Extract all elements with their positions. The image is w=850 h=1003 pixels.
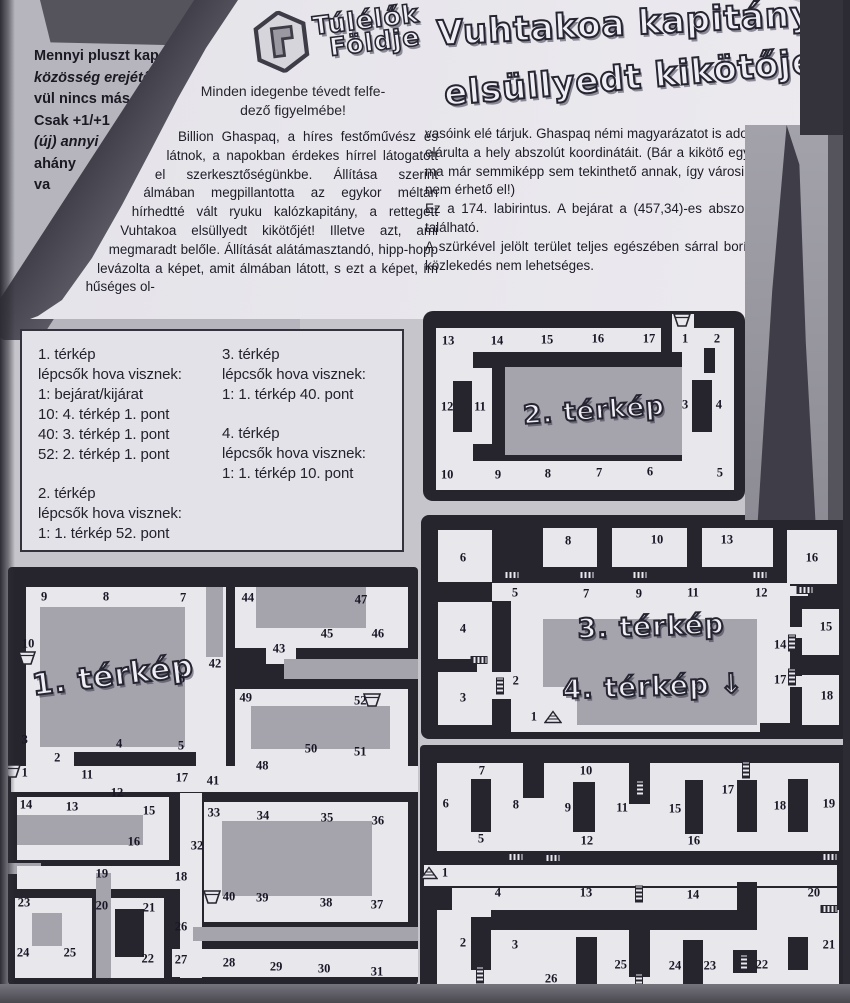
page-title-line2: elsüllyedt kikötője [429, 41, 831, 116]
background-photo [745, 125, 850, 520]
map-point-number: 2 [54, 750, 60, 765]
map-point-number: 3 [22, 733, 28, 748]
map-point-number: 8 [103, 590, 109, 605]
map-point-number: 12 [111, 786, 124, 801]
maze-wall [471, 779, 491, 832]
door-icon [740, 954, 748, 971]
stairs-legend-box: 1. térkép lépcsők hova visznek: 1: bejár… [20, 329, 404, 552]
map-point-number: 30 [318, 962, 331, 977]
legend-entry: 1: bejárat/kijárat [38, 385, 218, 405]
map-point-number: 6 [443, 797, 449, 812]
map-point-number: 33 [208, 806, 221, 821]
maze-wall [661, 328, 672, 353]
map-point-number: 11 [687, 585, 699, 600]
map-point-number: 9 [495, 467, 501, 482]
map-point-number: 4 [495, 886, 501, 901]
map-point-number: 25 [615, 958, 628, 973]
legend-title: 2. térkép [38, 484, 218, 504]
maze-mud-area [222, 821, 372, 896]
legend-subtitle: lépcsők hova visznek: [222, 444, 392, 464]
map-point-number: 5 [178, 738, 184, 753]
scan-edge-right [843, 0, 850, 1003]
map-point-number: 9 [41, 590, 47, 605]
map-point-number: 31 [371, 965, 384, 980]
map-point-number: 20 [808, 886, 821, 901]
map-point-number: 2 [460, 936, 466, 951]
map-point-number: 4 [716, 398, 722, 413]
door-icon [476, 967, 484, 984]
map-3-maze: 3. térkép4. térkép ↓12345678910111213141… [421, 515, 850, 739]
legend-entry: 52: 2. térkép 1. pont [38, 445, 218, 465]
maze-wall [683, 940, 703, 986]
map-point-number: 14 [20, 797, 33, 812]
map-point-number: 6 [647, 464, 653, 479]
legend-title: 4. térkép [222, 424, 392, 444]
maze-wall [692, 380, 712, 431]
intro-line1: Minden idegenbe tévedt felfe- [168, 82, 418, 101]
map-point-number: 17 [774, 673, 787, 688]
map-point-number: 12 [581, 834, 594, 849]
maze-mud-area [251, 706, 390, 749]
map-point-number: 7 [180, 590, 186, 605]
legend-entry: 1: 1. térkép 40. pont [222, 385, 392, 405]
map-point-number: 25 [64, 945, 77, 960]
door-icon [496, 678, 504, 695]
door-icon [788, 669, 796, 686]
stairs-icon [544, 710, 562, 723]
map-point-number: 18 [175, 870, 188, 885]
door-icon [578, 571, 595, 579]
map-point-number: 18 [821, 688, 834, 703]
door-icon [507, 853, 524, 861]
maze-wall [115, 909, 144, 957]
map-point-number: 47 [355, 593, 368, 608]
map-point-number: 15 [541, 333, 554, 348]
maze-wall [788, 779, 808, 832]
maze-mud-area [96, 873, 111, 978]
map-point-number: 38 [320, 896, 333, 911]
map-point-number: 24 [669, 959, 682, 974]
map-point-number: 13 [721, 533, 734, 548]
map-point-number: 10 [580, 764, 593, 779]
map-point-number: 14 [774, 637, 787, 652]
map-point-number: 50 [305, 741, 318, 756]
door-icon [820, 905, 837, 913]
map-point-number: 7 [479, 764, 485, 779]
maze-corridor [424, 865, 837, 886]
map-point-number: 11 [81, 768, 93, 783]
map-point-number: 12 [441, 399, 454, 414]
map-point-number: 35 [321, 810, 334, 825]
map-point-number: 36 [372, 814, 385, 829]
map-point-number: 2 [714, 331, 720, 346]
map-point-number: 15 [820, 620, 833, 635]
map-point-number: 48 [256, 758, 269, 773]
maze-wall [573, 782, 595, 832]
map-point-number: 7 [583, 587, 589, 602]
legend-title: 1. térkép [38, 345, 218, 365]
maze-wall [576, 937, 597, 986]
map-point-number: 4 [460, 622, 466, 637]
map-point-number: 10 [441, 467, 454, 482]
map-point-number: 12 [755, 585, 768, 600]
maze-wall [523, 745, 544, 798]
map-point-number: 5 [512, 585, 518, 600]
legend-section-map3: 3. térkép lépcsők hova visznek: 1: 1. té… [222, 345, 392, 405]
map-point-number: 17 [643, 331, 656, 346]
map-point-number: 22 [756, 958, 769, 973]
magazine-page: Mennyi pluszt kap Őr közösség erejétől v… [0, 0, 850, 1003]
maze-mud-area [32, 913, 62, 946]
maze-mud-area [193, 927, 418, 940]
map-point-number: 9 [565, 801, 571, 816]
door-icon [742, 762, 750, 779]
map-point-number: 3 [512, 938, 518, 953]
map-point-number: 7 [596, 466, 602, 481]
map-point-number: 41 [207, 774, 220, 789]
map-point-number: 24 [17, 945, 30, 960]
map-point-number: 15 [143, 804, 156, 819]
map-point-number: 23 [18, 896, 31, 911]
maze-corridor [702, 528, 773, 567]
map-point-number: 32 [191, 838, 204, 853]
legend-entry: 40: 3. térkép 1. pont [38, 425, 218, 445]
spire-silhouette [753, 125, 833, 520]
map-point-number: 10 [22, 636, 35, 651]
map-point-number: 13 [442, 334, 455, 349]
maze-corridor [452, 888, 837, 911]
door-icon [751, 571, 768, 579]
map-point-number: 19 [96, 866, 109, 881]
maze-mud-area [206, 587, 223, 657]
legend-subtitle: lépcsők hova visznek: [38, 365, 218, 385]
map-point-number: 16 [806, 551, 819, 566]
map-point-number: 46 [372, 626, 385, 641]
legend-entry: 10: 4. térkép 1. pont [38, 405, 218, 425]
door-icon [635, 885, 643, 902]
door-icon [470, 656, 487, 664]
intro-line2: dező figyelmébe! [168, 101, 418, 120]
map-point-number: 16 [128, 835, 141, 850]
map-point-number: 2 [513, 673, 519, 688]
legend-section-map4: 4. térkép lépcsők hova visznek: 1: 1. té… [222, 424, 392, 484]
door-icon [544, 854, 561, 862]
map-point-number: 13 [580, 886, 593, 901]
maze-wall [737, 780, 757, 832]
stairs-cup-icon [673, 313, 691, 327]
map-point-number: 21 [143, 901, 156, 916]
stairs-cup-icon [203, 890, 221, 904]
door-icon [796, 586, 813, 594]
maze-wall [471, 917, 491, 970]
tf-logo-icon [249, 7, 314, 76]
maze-mud-area [256, 587, 366, 628]
map-point-number: 16 [688, 834, 701, 849]
maze-wall [74, 752, 202, 766]
map-point-number: 45 [321, 626, 334, 641]
maze-corridor [612, 528, 687, 567]
stairs-icon [420, 866, 438, 879]
map-point-number: 10 [651, 533, 664, 548]
map-point-number: 27 [175, 952, 188, 967]
map-point-number: 14 [491, 334, 504, 349]
map-point-number: 44 [242, 590, 255, 605]
maze-corridor [760, 583, 790, 723]
map-label: 3. térkép [577, 609, 725, 645]
map-point-number: 1 [442, 866, 448, 881]
map-point-number: 5 [478, 832, 484, 847]
maze-mud-area [284, 659, 418, 679]
stairs-cup-icon [18, 651, 36, 665]
map-point-number: 28 [223, 955, 236, 970]
map-point-number: 26 [175, 919, 188, 934]
map-point-number: 51 [354, 745, 367, 760]
scan-edge-left [0, 0, 15, 990]
maze-mud-area [17, 815, 143, 845]
down-arrow-icon: ↓ [708, 669, 743, 701]
scan-edge-bottom [0, 984, 850, 1003]
map-point-number: 18 [774, 799, 787, 814]
map-2-maze: 2. térkép1234567891011121314151617 [423, 311, 745, 501]
maze-wall [704, 348, 715, 373]
maze-wall [629, 910, 650, 977]
maze-wall [453, 381, 472, 431]
map-point-number: 3 [682, 398, 688, 413]
legend-title: 3. térkép [222, 345, 392, 365]
map-point-number: 49 [240, 690, 253, 705]
map-point-number: 14 [687, 888, 700, 903]
map-point-number: 29 [270, 960, 283, 975]
map-point-number: 20 [96, 898, 109, 913]
maze-wall [737, 882, 757, 930]
map-point-number: 15 [669, 802, 682, 817]
door-icon [636, 781, 644, 798]
legend-entry: 1: 1. térkép 52. pont [38, 524, 218, 544]
map-point-number: 37 [371, 898, 384, 913]
maze-wall [788, 937, 808, 970]
map-point-number: 1 [531, 710, 537, 725]
map-point-number: 21 [823, 938, 836, 953]
door-icon [503, 571, 520, 579]
legend-section-map1: 1. térkép lépcsők hova visznek: 1: bejár… [38, 345, 218, 465]
map-point-number: 8 [545, 467, 551, 482]
map-point-number: 6 [460, 551, 466, 566]
map-point-number: 1 [22, 766, 28, 781]
map-4-maze: 1234567891011121314151617181920212223242… [420, 745, 850, 995]
legend-subtitle: lépcsők hova visznek: [222, 365, 392, 385]
map-point-number: 23 [704, 959, 717, 974]
map-point-number: 3 [460, 691, 466, 706]
map-1-maze: 1. térkép1234567891011121314151617181920… [8, 567, 418, 985]
map-point-number: 34 [257, 809, 270, 824]
map-point-number: 39 [256, 891, 269, 906]
map-point-number: 5 [717, 466, 723, 481]
map-point-number: 4 [116, 736, 122, 751]
door-icon [788, 634, 796, 651]
map-point-number: 16 [592, 331, 605, 346]
map-point-number: 11 [616, 801, 628, 816]
map-point-number: 52 [354, 694, 367, 709]
map-point-number: 17 [722, 783, 735, 798]
maze-wall [650, 910, 737, 930]
maze-wall [491, 910, 629, 930]
map-point-number: 11 [474, 399, 486, 414]
map-point-number: 17 [176, 771, 189, 786]
map-point-number: 42 [209, 656, 222, 671]
article-intro: Minden idegenbe tévedt felfe- dező figye… [168, 82, 418, 120]
maze-wall [685, 780, 703, 834]
map-point-number: 13 [66, 799, 79, 814]
map-point-number: 43 [273, 641, 286, 656]
map-point-number: 9 [636, 587, 642, 602]
legend-section-map2: 2. térkép lépcsők hova visznek: 1: 1. té… [38, 484, 218, 544]
door-icon [630, 571, 647, 579]
magazine-logo: Túlélők Földje [249, 0, 424, 76]
door-icon [820, 853, 837, 861]
legend-subtitle: lépcsők hova visznek: [38, 504, 218, 524]
legend-entry: 1: 1. térkép 10. pont [222, 464, 392, 484]
map-point-number: 1 [682, 331, 688, 346]
map-point-number: 40 [223, 889, 236, 904]
map-point-number: 8 [513, 798, 519, 813]
map-point-number: 22 [142, 952, 155, 967]
map-point-number: 19 [823, 797, 836, 812]
map-point-number: 8 [565, 533, 571, 548]
map-point-number: 6 [179, 672, 185, 687]
